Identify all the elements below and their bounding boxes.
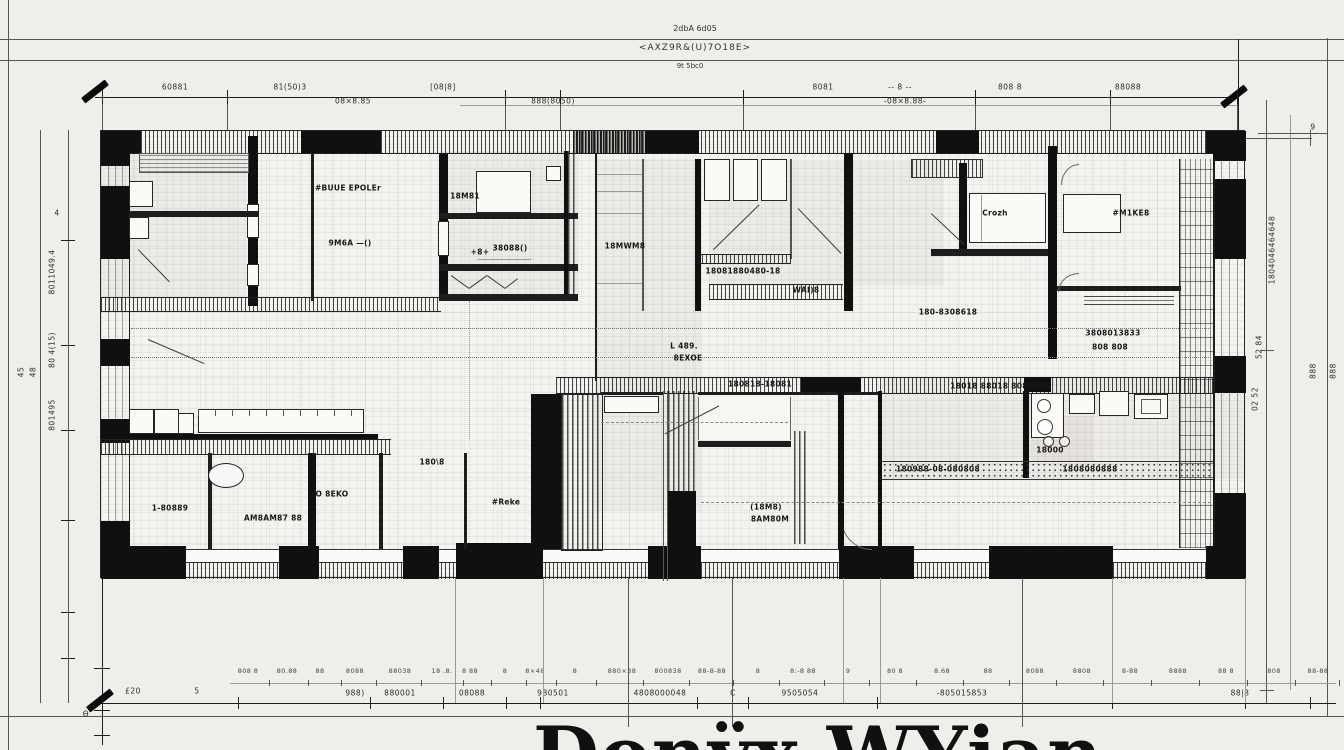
tick-mark	[743, 90, 744, 104]
dimension-label: 81(50)3	[273, 83, 306, 92]
guide-line	[131, 328, 1211, 329]
duct-shaft	[668, 491, 696, 579]
hatch-wall	[573, 131, 646, 153]
extension-line	[732, 578, 733, 727]
duct-shaft	[794, 431, 806, 544]
column-pier	[456, 543, 543, 579]
furniture-box	[546, 166, 561, 181]
dimension-label: 4808000048	[634, 689, 687, 698]
dimension-label: 88-8-88	[698, 667, 726, 675]
hatch-wall	[709, 284, 843, 300]
room-label: 18018 88018 8080808	[950, 382, 1050, 391]
dimension-label: 80 4(15)	[48, 332, 57, 368]
wall-segment	[601, 392, 663, 395]
tick-mark	[697, 697, 698, 709]
dimension-label: 8.68	[934, 667, 950, 675]
tick-mark	[61, 520, 75, 521]
room-label: #M1KE8	[1113, 209, 1150, 218]
tick-mark	[1151, 680, 1152, 686]
shelf	[1084, 296, 1174, 305]
tick-mark	[748, 697, 749, 709]
column-pier	[1213, 493, 1246, 548]
door-opening	[247, 204, 259, 238]
dimension-label: 808 8	[998, 83, 1022, 92]
tick-mark	[1110, 90, 1111, 104]
room-label: 8AM80M	[751, 515, 789, 524]
room-label: +8+	[471, 248, 490, 257]
tick-mark	[596, 680, 597, 686]
dimension-label: 8088	[1026, 667, 1044, 675]
tick-mark	[556, 680, 557, 686]
shelf	[597, 283, 642, 284]
corner-glyph: £20	[125, 687, 141, 696]
hatch-wall	[698, 254, 791, 264]
tick-mark	[61, 345, 75, 346]
extension-line	[743, 104, 744, 130]
duct-shaft	[1179, 159, 1215, 548]
dimension-label: 48	[29, 367, 38, 378]
bed	[981, 195, 982, 241]
room-label: L 489.	[670, 342, 698, 351]
dimension-label: 8-88	[1122, 667, 1138, 675]
dimension-label: 80.88	[277, 667, 298, 675]
duct-shaft	[668, 391, 696, 491]
dimension-label: 800838	[654, 667, 681, 675]
dimension-label: 9505054	[782, 689, 819, 698]
tick-mark	[463, 680, 464, 686]
column-pier	[101, 131, 130, 166]
tick-mark	[1247, 680, 1248, 686]
corner-glyph: 4	[54, 209, 59, 218]
tick-mark	[61, 658, 75, 659]
tick-mark	[102, 90, 103, 104]
dimension-label: 08×8.85	[335, 97, 371, 106]
shelf	[597, 191, 642, 192]
tick-mark	[491, 680, 492, 686]
extension-line	[102, 104, 103, 130]
dimension-line	[1266, 100, 1267, 703]
dimension-line	[95, 97, 1238, 98]
hatch-wall	[101, 297, 441, 312]
dimension-label: [08|8]	[430, 83, 456, 92]
dimension-line	[460, 105, 1238, 106]
radiator	[911, 159, 983, 178]
bed	[476, 171, 531, 213]
room-label: 180\8	[419, 458, 444, 467]
sheet-title-text: <AXZ9R&(U)7O18E>	[639, 43, 751, 53]
tick-mark	[869, 680, 870, 686]
shelf	[597, 213, 642, 214]
washbasin	[129, 409, 154, 434]
room-label: 9M6A —()	[328, 239, 371, 248]
dimension-label: 808	[1267, 667, 1281, 675]
dimension-label: -08×8.88-	[884, 97, 926, 106]
door-swing-line	[148, 339, 205, 364]
border-line	[0, 60, 1344, 61]
tick-mark	[376, 680, 377, 686]
room-label: 1808080888	[1062, 465, 1117, 474]
wall-segment	[101, 153, 1246, 154]
furniture-box	[129, 181, 153, 207]
dimension-line	[230, 683, 1336, 684]
bay-window	[198, 409, 364, 416]
column-pier	[101, 339, 130, 366]
tick-mark	[1310, 697, 1311, 709]
extension-line	[880, 578, 881, 703]
extension-line	[1022, 578, 1023, 727]
tick-mark	[238, 697, 239, 709]
stair-flight	[561, 394, 603, 551]
tick-mark	[560, 90, 561, 104]
tick-mark	[824, 680, 825, 686]
sink-bowl	[1037, 399, 1051, 413]
room-label: Crozh	[982, 209, 1008, 218]
extension-line	[560, 104, 561, 130]
title-text: Donÿx WYian	[533, 717, 1103, 750]
door-arc	[1058, 273, 1079, 292]
column-pier	[101, 186, 130, 259]
dimension-label: 8	[573, 667, 578, 675]
dimension-line	[68, 130, 69, 703]
tick-mark	[443, 697, 444, 709]
wall-segment	[439, 264, 578, 271]
shelf	[597, 174, 642, 175]
tick-mark	[1258, 133, 1328, 134]
dimension-label: -- 8 --	[888, 83, 912, 92]
tick-mark	[733, 680, 734, 686]
dimension-label: 8 88	[462, 667, 478, 675]
blueprint-page: 2dbA 6d05 <AXZ9R&(U)7O18E> 9t 5bc0	[0, 0, 1344, 750]
tick-mark	[963, 680, 964, 686]
wall-segment	[663, 391, 664, 581]
dimension-label: 1804046464648	[1268, 216, 1277, 285]
sheet-number-text: 2dbA 6d05	[673, 24, 717, 33]
tick-mark	[94, 735, 110, 736]
dimension-line	[1290, 115, 1291, 690]
room-label: 180988-08-080808	[896, 465, 980, 474]
room-label: 8EXOE	[674, 354, 703, 363]
hatch-wall	[101, 439, 391, 455]
kitchen-fixture	[1099, 391, 1129, 416]
extension-line	[843, 578, 844, 703]
sheet-subtitle-text: 9t 5bc0	[677, 62, 704, 70]
stair-flight	[531, 394, 561, 549]
wall-segment	[379, 453, 383, 549]
room-label: 38088()	[492, 244, 527, 253]
guide-line	[131, 357, 1211, 358]
room-label: O 8EKO	[316, 490, 349, 499]
tick-mark	[916, 680, 917, 686]
dimension-label: 80 8	[887, 667, 903, 675]
room-label: 808 808	[1092, 343, 1128, 352]
dimension-label: 988)	[345, 689, 364, 698]
extension-line	[543, 578, 544, 703]
furniture-box	[129, 217, 149, 239]
extension-line	[227, 104, 228, 130]
dimension-label: 980501	[537, 689, 569, 698]
tick-mark	[643, 680, 644, 686]
tick-mark	[61, 612, 75, 613]
room-label: #BUUE EPOLEr	[315, 184, 381, 193]
dimension-label: 88-88	[1308, 667, 1329, 675]
wall-segment	[698, 392, 881, 395]
dimension-label: 8	[756, 667, 761, 675]
tick-mark	[689, 680, 690, 686]
stair-landing	[604, 396, 659, 413]
room-label: 180-8308618	[919, 308, 978, 317]
wall-segment	[126, 434, 378, 439]
column-pier	[1213, 356, 1246, 393]
column-pier	[839, 546, 914, 579]
extension-line	[1237, 104, 1238, 130]
dimension-label: 88088	[1115, 83, 1141, 92]
column-pier	[1213, 131, 1246, 161]
dimension-line	[40, 130, 41, 703]
corner-glyph: 5	[194, 687, 199, 696]
dimension-label: 52 84	[1255, 335, 1264, 359]
dimension-label: 888(8050)	[531, 97, 575, 106]
tick-mark	[1295, 680, 1296, 686]
dimension-label: 888	[1309, 363, 1318, 379]
tick-mark	[94, 710, 110, 711]
wall-segment	[642, 159, 644, 311]
tick-mark	[1009, 680, 1010, 686]
dimension-label: 888	[1329, 363, 1338, 379]
column-pier	[101, 521, 130, 549]
room-label: WAI)8	[793, 286, 820, 295]
column-pier	[1213, 179, 1246, 259]
tick-mark	[506, 697, 507, 709]
guide-line	[601, 422, 788, 423]
dimension-label: 8	[503, 667, 508, 675]
door-arc	[1061, 164, 1079, 185]
extension-line	[1112, 578, 1113, 703]
tick-mark	[877, 697, 878, 709]
washbasin	[154, 409, 179, 434]
tick-mark	[1237, 90, 1238, 104]
tick-mark	[540, 697, 541, 709]
wall-segment	[464, 453, 467, 549]
room-label: 18081880480-18	[705, 267, 780, 276]
room-label: (18M8)	[750, 503, 782, 512]
tick-mark	[370, 697, 371, 709]
dimension-label: 88	[315, 667, 324, 675]
corner-glyph: 9	[1310, 123, 1315, 132]
door-opening	[247, 264, 259, 286]
dimension-label: 880×38	[608, 667, 637, 675]
door-opening	[438, 221, 449, 256]
room-label: 18000	[1036, 446, 1064, 455]
wall-segment	[790, 159, 792, 259]
tick-mark	[505, 90, 506, 104]
wall-segment	[695, 159, 701, 311]
dimension-label: 880001	[384, 689, 416, 698]
dimension-line	[1238, 138, 1312, 139]
tick-mark	[61, 430, 75, 431]
kitchen-fixture	[1069, 394, 1095, 414]
column-pier	[301, 131, 381, 153]
dimension-label: 8081	[812, 83, 833, 92]
tick-mark	[1260, 690, 1274, 691]
column-pier	[279, 546, 319, 579]
dimension-slash-arrow	[81, 80, 109, 104]
tick-mark	[526, 680, 527, 686]
border-line	[8, 0, 9, 750]
room-label: 3808013833	[1085, 329, 1140, 338]
room-label: 1-80889	[152, 504, 189, 513]
wall-segment	[311, 153, 314, 301]
tick-mark	[421, 680, 422, 686]
guide-line	[469, 301, 470, 439]
column-pier	[936, 131, 979, 153]
tick-mark	[94, 668, 110, 669]
extension-line	[975, 104, 976, 130]
tick-mark	[227, 90, 228, 104]
tick-mark	[1339, 680, 1340, 686]
dimension-label: 02 52	[1251, 387, 1260, 411]
tick-mark	[1103, 680, 1104, 686]
dimension-label: 88 8	[1218, 667, 1234, 675]
toilet	[208, 463, 244, 488]
tick-mark	[269, 680, 270, 686]
tick-mark	[975, 90, 976, 104]
floor-plan	[100, 130, 1245, 578]
dimension-label: 801495	[48, 399, 57, 431]
dimension-label: 9	[846, 667, 851, 675]
corridor-strip	[698, 397, 791, 440]
tick-mark	[341, 680, 342, 686]
dimension-label: 60881	[162, 83, 188, 92]
room-label: 180818-18081	[728, 380, 792, 389]
column-pier	[646, 131, 699, 153]
dimension-label: 8088	[346, 667, 364, 675]
tick-mark	[102, 697, 103, 709]
dimension-label: 88|8	[1231, 689, 1250, 698]
extension-line	[1110, 104, 1111, 130]
extension-line	[628, 578, 629, 727]
closet-box	[761, 159, 787, 201]
tick-mark	[61, 240, 75, 241]
dimension-label: -805015853	[937, 689, 988, 698]
border-line	[0, 39, 1344, 40]
column-pier	[1206, 546, 1246, 579]
dimension-label: 8×48	[525, 667, 544, 675]
room-label: AM8AM87 88	[244, 514, 302, 523]
extension-line	[1245, 578, 1246, 703]
wall-segment	[698, 441, 791, 447]
wall-segment	[308, 453, 316, 549]
tick-mark	[779, 680, 780, 686]
corner-glyph: ϴ	[83, 710, 89, 719]
room-label: #Reke	[492, 498, 521, 507]
extension-line	[455, 578, 456, 703]
tick-mark	[308, 680, 309, 686]
dimension-label: 808 8	[238, 667, 259, 675]
wall-segment	[439, 294, 578, 301]
column-pier	[989, 546, 1113, 579]
dimension-label: 8888	[1169, 667, 1187, 675]
dimension-label: 88	[983, 667, 992, 675]
column-pier	[101, 546, 186, 579]
sink-bowl	[1037, 419, 1053, 435]
wall-segment	[838, 391, 844, 549]
extension-line	[505, 104, 506, 130]
wardrobe	[139, 153, 249, 173]
dimension-label: 8011049.4	[48, 249, 57, 294]
dimension-line	[95, 703, 1336, 704]
dimension-label: 8808	[1073, 667, 1091, 675]
dimension-label: 88038	[389, 667, 412, 675]
closet-box	[704, 159, 730, 201]
column-pier	[801, 377, 861, 392]
kitchen-fixture	[1141, 399, 1161, 414]
room-label: 18M81	[450, 192, 480, 201]
wall-segment	[844, 153, 853, 311]
wall-segment	[931, 249, 1048, 256]
room-label: 18MWM8	[605, 242, 646, 251]
dimension-slash-arrow	[86, 689, 114, 713]
dimension-label: 45	[17, 367, 26, 378]
tick-mark	[1199, 680, 1200, 686]
dimension-label: 18 .8.	[431, 667, 452, 675]
dimension-label: 8:-8 88	[790, 667, 816, 675]
column-pier	[403, 546, 439, 579]
closet-box	[733, 159, 758, 201]
annotation-arrow	[478, 259, 531, 260]
tick-mark	[1056, 680, 1057, 686]
hatch-wall	[568, 151, 578, 294]
dimension-label: 08088	[459, 689, 485, 698]
wall-segment	[595, 153, 597, 381]
wall-segment	[439, 213, 578, 219]
